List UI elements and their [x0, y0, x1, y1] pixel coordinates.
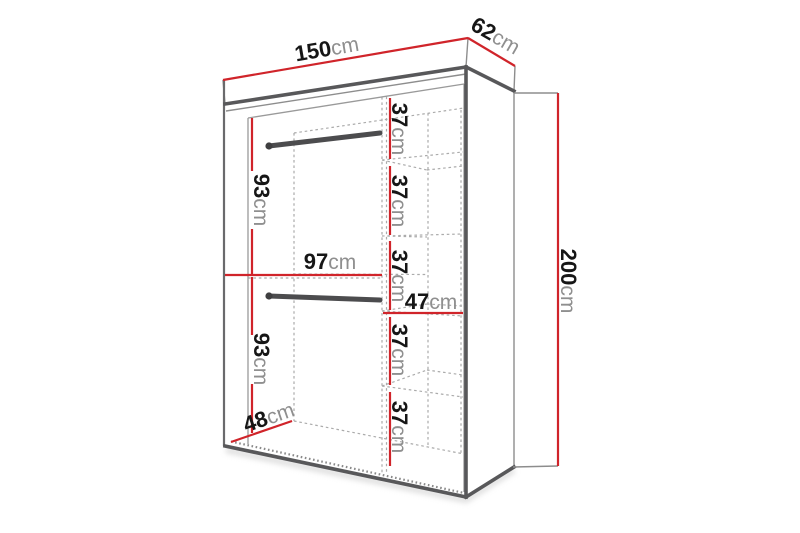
shelf-gap-5-label: 37cm	[387, 401, 412, 453]
upper-section-dimension-label: 93cm	[249, 174, 274, 226]
height-extension-lines	[513, 93, 558, 467]
shelf-gap-1-label: 37cm	[387, 103, 412, 155]
height-dimension-label: 200cm	[556, 249, 581, 314]
lower-section-dimension-label: 93cm	[249, 333, 274, 385]
depth-dimension-label: 62cm	[467, 12, 525, 60]
shelf-compartment-width-label: 47cm	[405, 289, 457, 314]
shelf-gap-3-label: 37cm	[387, 250, 412, 302]
shelf-gap-4-label: 37cm	[387, 324, 412, 376]
wardrobe-dimension-diagram: 150cm 62cm 200cm 93cm 93cm 97cm 47cm 48c…	[0, 0, 800, 533]
shelf-gap-2-label: 37cm	[387, 175, 412, 227]
rail-compartment-width-label: 97cm	[304, 249, 356, 274]
diagram-canvas: 150cm 62cm 200cm 93cm 93cm 97cm 47cm 48c…	[0, 0, 800, 533]
